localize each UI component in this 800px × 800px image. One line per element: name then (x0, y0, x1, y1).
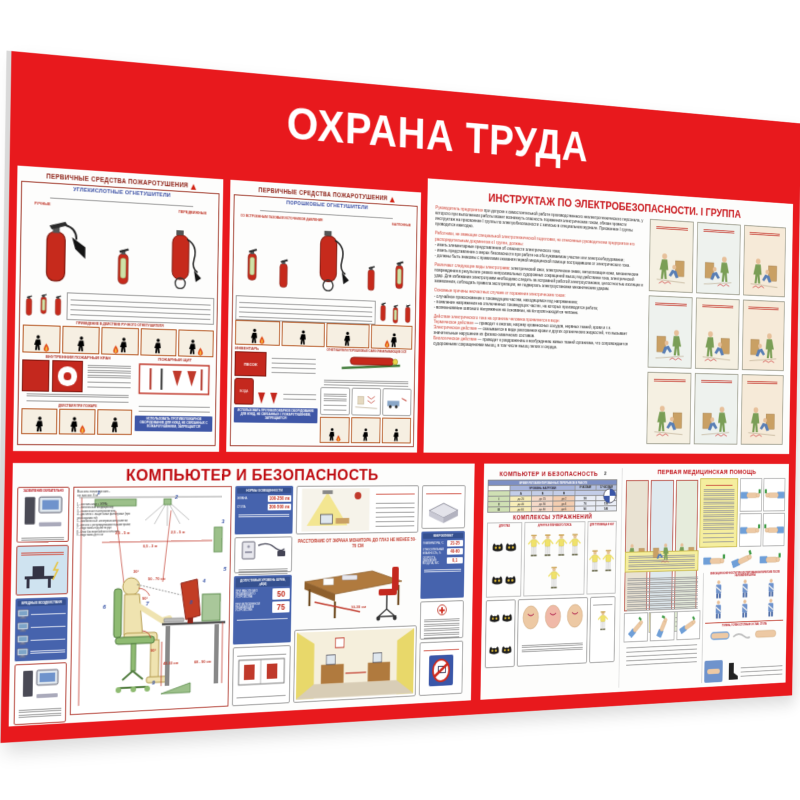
firstaid-title: ПЕРВАЯ МЕДИЦИНСКАЯ ПОМОЩЬ (626, 468, 785, 478)
person-icon (76, 335, 86, 353)
osp-extinguisher-icon (320, 353, 412, 374)
noise-row-label: ПРИ ВКЛЮЧЕННОМ ПЕЧАТАЮЩЕМ УСТРОЙСТВЕ (235, 603, 270, 613)
poster-electrosafety: ИНСТРУКТАЖ ПО ЭЛЕКТРОБЕЗОПАСНОСТИ. I ГРУ… (424, 178, 794, 454)
massage-panel (517, 597, 588, 667)
monitor-panel (14, 662, 67, 725)
grounding-panel: ЗАЗЕМЛЕНИЕ ОБЯЗАТЕЛЬНО (16, 487, 69, 543)
ceiling-mount-scene (320, 387, 350, 415)
exercise-group-body: ДЛЯ ТУЛОВИЩА И НОГ (586, 521, 616, 595)
comp1-far-right-column: МИКРОКЛИМАТ ТЕМПЕРАТУРА, °С21-25 ОТНОСИТ… (419, 485, 466, 696)
microclimate-panel: МИКРОКЛИМАТ ТЕМПЕРАТУРА, °С21-25 ОТНОСИТ… (420, 531, 464, 599)
stripe-extinguisher-icon (113, 243, 134, 287)
shield-section: ПОЖАРНЫЙ ЩИТ ИСПОЛЬЗОВАТЬ ПРОТИВОПОЖАРНО… (135, 355, 214, 445)
scene-illustration (744, 396, 779, 443)
hazards-caption: ВРЕДНЫЕ ВОЗДЕЙСТВИЯ (17, 599, 65, 606)
comp2-bottom-panels (485, 596, 616, 668)
exercise-group-arms: ДЛЯ РУК И ПЛЕЧЕВОГО ПОЯСА (523, 521, 585, 596)
diagram-number: 4 (203, 579, 206, 585)
comp2-title: КОМПЬЮТЕР И БЕЗОПАСНОСТЬ (499, 470, 598, 478)
poster-fire-co2: ПЕРВИЧНЫЕ СРЕДСТВА ПОЖАРОТУШЕНИЯ УГЛЕКИС… (13, 166, 223, 452)
person-icon (33, 334, 43, 352)
comp1-right-column: РАССТОЯНИЕ ОТ ЭКРАНА МОНИТОРА ДО ГЛАЗ НЕ… (293, 485, 419, 703)
arm-icon (654, 614, 671, 639)
poster-computer-safety-2: КОМПЬЮТЕР И БЕЗОПАСНОСТЬ 2 ВРЕМЯ РЕГЛАМЕ… (484, 468, 617, 695)
monitor-icon (17, 635, 29, 645)
scene-illustration (699, 320, 735, 368)
powder-extinguisher-icon (364, 262, 378, 294)
water-barrel: ВОДА (234, 378, 254, 405)
poster-first-aid: ПЕРВАЯ МЕДИЦИНСКАЯ ПОМОЩЬ (618, 468, 785, 688)
small-extinguisher-icon (403, 300, 413, 326)
sling-figure-icon (740, 599, 749, 618)
fire1-body: УГЛЕКИСЛОТНЫЕ ОГНЕТУШИТЕЛИ РУЧНЫЕ ПЕРЕДВ… (17, 181, 219, 446)
door-diagram (235, 656, 288, 687)
fire-cabinet-icon (22, 359, 50, 391)
arm-icon (759, 552, 781, 565)
sling-figure-icon (714, 580, 723, 599)
paragraph: Основные причины несчастных случаев от п… (434, 288, 643, 318)
hazards-panel: ВРЕДНЫЕ ВОЗДЕЙСТВИЯ (15, 597, 68, 661)
small-extinguisher-icon (23, 291, 35, 319)
arm-icon (741, 489, 762, 501)
lighting-scheme-panel (296, 485, 419, 534)
exercise-figure-icon (597, 609, 608, 632)
pc-wiring-icon (20, 493, 67, 529)
small-extinguisher-icon (52, 290, 64, 320)
flame-icon (197, 347, 203, 356)
room-height-note: Высота помещения - не менее 3 м (77, 489, 110, 498)
dimension-label: 90° (151, 648, 157, 653)
person-icon (119, 336, 129, 354)
micro-row-value: 21-25 (447, 540, 463, 547)
comic-cell (235, 320, 280, 346)
comic-panel (695, 297, 739, 369)
arm-raise-step (624, 612, 649, 642)
micro-row-label: СКОРОСТЬ ДВИЖЕНИЯ ВОЗДУХА, М/С (423, 557, 446, 566)
powder-extinguisher-icon (276, 255, 292, 290)
scene-illustration (746, 247, 781, 295)
comic-panel (741, 374, 784, 445)
arm-raise-step (676, 610, 700, 640)
sling-figure-icon (740, 579, 749, 598)
cell: до 60 (510, 507, 532, 513)
posture-panel (589, 596, 615, 663)
comic-panel (696, 222, 740, 295)
printer-icon (424, 496, 463, 523)
lighting-row-value: 100-250 лк (267, 495, 291, 502)
bandage-step (763, 513, 785, 547)
firstaid-note-panel (420, 600, 464, 640)
micro-row-value: 0,1 (447, 557, 463, 564)
micro-row-value: 40-60 (447, 548, 463, 555)
noise-row-value: 50 (272, 588, 290, 600)
comic-cell (178, 329, 214, 357)
fire-bucket-icon (257, 391, 266, 404)
exercise-groups: ДЛЯ ГЛАЗ ДЛЯ РУК И ПЛЕЧЕВОГО ПОЯСА (486, 521, 617, 598)
noise-panel: ДОПУСТИМЫЙ УРОВЕНЬ ШУМА, дБ(А) ПРИ РАБОТ… (233, 575, 292, 645)
storm-panel (16, 545, 69, 596)
comic-panel (694, 373, 738, 445)
osp-section: ОГНЕТУШИТЕЛИ ПОРОШКОВЫЕ САМОСРАБАТЫВАЮЩИ… (319, 347, 412, 437)
door-layout-panel (232, 645, 291, 706)
comic-panel (743, 225, 786, 297)
bandage-step (740, 478, 763, 512)
comic-cell (281, 321, 325, 347)
desk-chair-panel: 10-30 см (294, 552, 417, 627)
usage-strip (22, 325, 213, 356)
micro-row-label: ТЕМПЕРАТУРА, °С (423, 542, 446, 545)
red-cross-icon (437, 604, 447, 615)
desk-dimension: 10-30 см (351, 605, 366, 610)
paragraph-body: - случайное прикосновение к токоведущим … (434, 294, 598, 315)
arm-icon (740, 524, 761, 536)
faces-panel (485, 599, 516, 668)
eyes-exercise-icon (491, 541, 504, 551)
exercise-figure-icon (541, 533, 554, 558)
cell: до 40 (532, 506, 554, 512)
arm-icon (678, 615, 699, 636)
dimension-label: 50 - 70 см (148, 576, 165, 581)
comic-panel (648, 295, 693, 368)
sling-figure-icon (714, 600, 723, 619)
diagram-number: 9 (152, 681, 155, 687)
actions-strip (21, 408, 132, 433)
comp1-mid-column: НОРМЫ ОСВЕЩЕННОСТИ ЭКРАНА100-250 лк СТОЛ… (232, 486, 293, 706)
lighting-row-value: 300-500 лк (267, 504, 291, 511)
hose-reel-icon (52, 360, 83, 392)
desk-chair-illustration (294, 552, 417, 627)
diagram-number: 6 (103, 605, 106, 611)
comic-cell (21, 408, 58, 434)
arm-icon (703, 553, 726, 566)
diagram-number: 3 (221, 519, 224, 525)
boot-splint-icon (725, 661, 739, 682)
lighting-norms-panel: НОРМЫ ОСВЕЩЕННОСТИ ЭКРАНА100-250 лк СТОЛ… (235, 486, 294, 534)
comp1-left-column: ЗАЗЕМЛЕНИЕ ОБЯЗАТЕЛЬНО ВРЕДНЫЕ ВОЗДЕЙСТВ… (14, 487, 70, 719)
scene-illustration (652, 242, 689, 292)
fixation-column: ФИКСАЦИЯ КОНЕЧНОСТИ ПРИ ИЗОЛИРОВАННОМ ПЕ… (701, 571, 784, 683)
flame-icon (390, 196, 395, 202)
garage-scene (382, 388, 411, 416)
arm-icon (763, 524, 784, 536)
arm-icon (626, 615, 646, 639)
exercise-figure-icon (588, 548, 601, 573)
inventory-section: ИНВЕНТАРЬ ПЕСОК ВОДА ИСПОЛЬЗОВАТЬ ПРОТИВ… (234, 345, 319, 437)
noise-row-label: ПРИ РАБОТЕ БЕЗ ПЕЧАТАЮЩЕГО УСТРОЙСТВА (235, 589, 270, 599)
room-layout-illustration (296, 629, 414, 700)
comic-cell (319, 417, 349, 443)
rescue-scenes-column (625, 478, 698, 549)
arm-raise-step (650, 611, 674, 641)
instructions-column (699, 478, 738, 548)
comic-panel (649, 219, 694, 293)
diagram-number: 1 (97, 491, 100, 497)
fire1-illustrations (23, 205, 215, 291)
devices-panel (421, 485, 465, 529)
eyes-exercise-icon (488, 645, 500, 654)
crane-section: ВНУТРЕННИЙ ПОЖАРНЫЙ КРАН ДЕЙСТВИЯ ПРИ ПО… (21, 352, 133, 444)
fire-bucket-icon (269, 392, 278, 405)
light-beams-illustration (299, 488, 373, 531)
eyes-exercise-icon (491, 574, 504, 584)
person-icon (154, 337, 163, 355)
noise-row-value: 75 (272, 601, 290, 613)
electro-text-column: Руководитель предприятия при допуске к с… (432, 205, 644, 444)
comic-panel (742, 300, 785, 372)
comic-cell (102, 327, 139, 355)
comic-cell (382, 418, 411, 444)
cell: 140 (596, 506, 617, 511)
sand-box: ПЕСОК (234, 351, 266, 376)
fire2-illustrations (236, 217, 414, 295)
bandage-step (739, 513, 762, 547)
poster-computer-safety-1: КОМПЬЮТЕР И БЕЗОПАСНОСТЬ ЗАЗЕМЛЕНИЕ ОБЯЗ… (9, 463, 475, 727)
scene-illustration (650, 394, 687, 442)
comic-panel (646, 372, 691, 444)
powder-extinguisher-icon (391, 254, 406, 295)
poster-duo-sheet: КОМПЬЮТЕР И БЕЗОПАСНОСТЬ 2 ВРЕМЯ РЕГЛАМЕ… (480, 464, 789, 700)
comic-cell (370, 325, 412, 350)
comic-cell (22, 325, 60, 354)
splint-arms-row (700, 548, 784, 570)
eyes-exercise-icon (505, 541, 518, 551)
clock-icon (603, 488, 617, 504)
small-extinguisher-icon (378, 297, 388, 325)
breaks-table: ВРЕМЯ РЕГЛАМЕНТИРОВАННЫХ ПЕРЕРЫВОВ В РАБ… (487, 479, 617, 512)
powder-extinguisher-icon (243, 239, 261, 289)
room-scene (351, 388, 381, 416)
dimension-label: 42-53 см (163, 660, 178, 665)
comic-cell (351, 417, 381, 443)
arm-icon (731, 549, 755, 570)
small-extinguisher-icon (390, 301, 400, 325)
system-unit-icon (237, 539, 290, 561)
micro-row-label: ОТНОСИТЕЛЬНАЯ ВЛАЖНОСТЬ, % (423, 549, 446, 555)
sling-figure-icon (766, 579, 775, 598)
exercise-figure-icon (547, 565, 560, 590)
comic-cell (97, 409, 132, 435)
dimension-label: 2,5 - 5 м (171, 529, 185, 534)
person-icon (188, 338, 197, 356)
workplace-diagram: Высота помещения - не менее 3 м 1 - свет… (70, 486, 232, 715)
electro-comic-grid (646, 219, 786, 445)
scene-illustration (745, 322, 780, 370)
fire2-body: ПОРОШКОВЫЕ ОГНЕТУШИТЕЛИ СО ВСТРОЕННЫМ ГА… (230, 194, 418, 447)
cell: до 6 (553, 506, 574, 511)
co2-extinguisher-icon (37, 214, 88, 286)
distance-note: РАССТОЯНИЕ ОТ ЭКРАНА МОНИТОРА ДО ГЛАЗ НЕ… (296, 537, 418, 550)
comp2-page-number: 2 (604, 471, 607, 476)
cell: 90 (574, 506, 595, 511)
exercise-figure-icon (568, 533, 581, 558)
exercise-figure-icon (602, 548, 615, 573)
safety-board: ОХРАНА ТРУДА ПЕРВИЧНЫЕ СРЕДСТВА ПОЖАРОТУ… (1, 51, 800, 743)
massage-illustration (520, 600, 586, 638)
arm-icon (764, 489, 785, 501)
pc-icon (17, 665, 64, 701)
noise-title: ДОПУСТИМЫЙ УРОВЕНЬ ШУМА, дБ(А) (236, 577, 290, 588)
diagram-number: 2 (175, 495, 178, 501)
diagram-number: 8 (190, 600, 193, 606)
bandage-step (763, 478, 785, 511)
silhouette-desk-icon (19, 558, 66, 591)
prohibition-panel (419, 641, 463, 696)
small-extinguisher-icon (38, 287, 50, 319)
bandage-steps-grid (739, 478, 785, 547)
cell: III (488, 507, 510, 513)
warning-box: ИСПОЛЬЗОВАТЬ ПРОТИВОПОЖАРНОЕ ОБОРУДОВАНИ… (234, 407, 318, 423)
paragraph: Действие электрического тока на организм… (433, 314, 642, 353)
exercise-group-eyes: ДЛЯ ГЛАЗ (486, 522, 522, 598)
exercise-figure-icon (555, 533, 568, 558)
eyes-exercise-icon (504, 574, 517, 584)
dimension-label: 90° (142, 596, 148, 601)
dimension-label: 0,5 - 3 м (143, 543, 157, 548)
no-smoking-alcohol-sign (429, 655, 454, 687)
monitor-icon (17, 622, 29, 632)
comp1-title: КОМПЬЮТЕР И БЕЗОПАСНОСТЬ (17, 466, 470, 487)
comic-cell (140, 328, 176, 356)
mobile-extinguisher-icon (158, 228, 203, 290)
dimension-label: 30° (133, 569, 139, 574)
warning-box: ИСПОЛЬЗОВАТЬ ПРОТИВОПОЖАРНОЕ ОБОРУДОВАНИ… (135, 416, 213, 432)
monitor-icon (17, 648, 29, 658)
scene-illustration (651, 318, 688, 367)
monitor-icon (17, 609, 29, 619)
diagram-number: 5 (223, 567, 226, 573)
scene-illustration (700, 244, 736, 293)
board-title: ОХРАНА ТРУДА (29, 75, 787, 187)
lighting-row-label: СТОЛА (237, 506, 266, 509)
title-band: ОХРАНА ТРУДА (10, 73, 800, 188)
big-powder-extinguisher-icon (306, 229, 351, 293)
lighting-title: НОРМЫ ОСВЕЩЕННОСТИ (237, 488, 291, 494)
scene-illustration (651, 494, 672, 610)
table-row: III до 60 до 40 до 6 90 140 (488, 506, 617, 513)
lighting-row-label: ЭКРАНА (237, 497, 266, 500)
comic-cell (326, 323, 369, 348)
room-layout-panel (293, 626, 416, 703)
exercise-figure-icon (527, 533, 540, 558)
microclimate-title: МИКРОКЛИМАТ (423, 533, 463, 539)
comic-cell (62, 326, 100, 355)
splint-diagram-box (704, 660, 723, 683)
comic-cell (59, 409, 95, 435)
sling-figure-icon (766, 598, 775, 617)
eyes-exercise-icon (501, 613, 513, 622)
eyes-exercise-icon (488, 613, 500, 622)
dimension-label: 2,5 - 5 м (115, 530, 129, 535)
dimension-label: 68 - 90 см (194, 659, 211, 665)
usage-strip (235, 320, 412, 348)
flame-icon (43, 343, 50, 352)
diagram-number: 7 (146, 602, 149, 608)
spec-table (66, 292, 214, 325)
poster-fire-powder: ПЕРВИЧНЫЕ СРЕДСТВА ПОЖАРОТУШЕНИЯ ПОРОШКО… (226, 180, 421, 453)
rescue-scene (649, 480, 674, 610)
photo-background: ОХРАНА ТРУДА ПЕРВИЧНЫЕ СРЕДСТВА ПОЖАРОТУ… (0, 0, 800, 800)
fire-shield-icon (135, 362, 213, 396)
flame-icon (191, 183, 197, 189)
cables-panel (234, 536, 292, 573)
eyes-exercise-icon (500, 645, 512, 654)
paragraph-body: электрический ожог, электрические знаки,… (434, 266, 643, 291)
scene-illustration (698, 395, 734, 443)
